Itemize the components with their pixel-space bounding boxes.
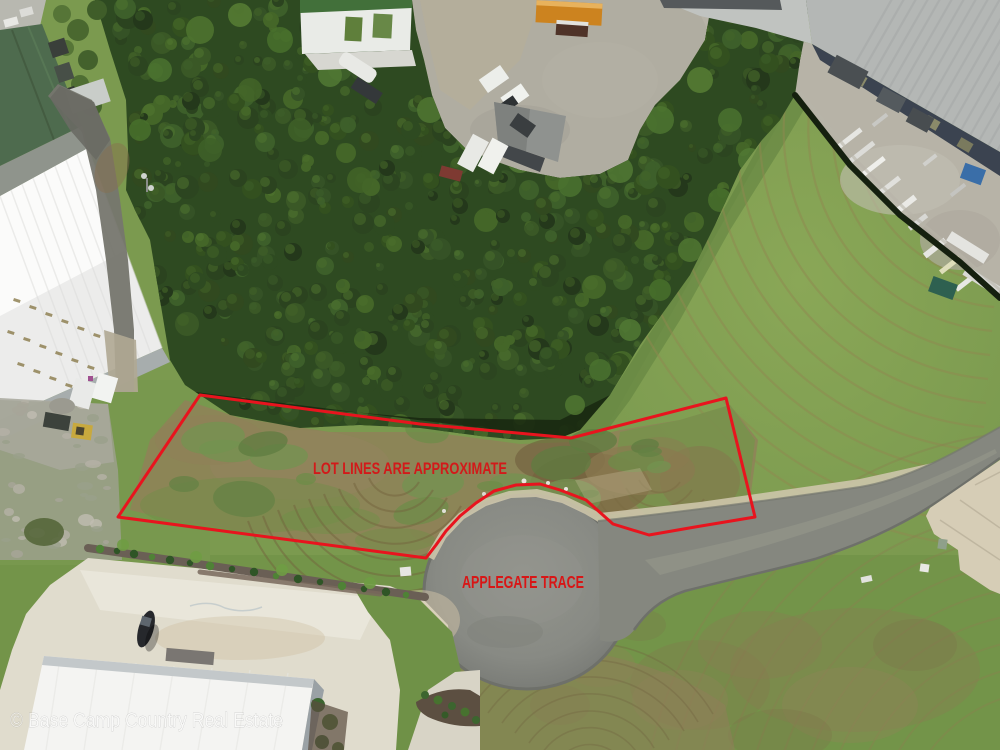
svg-text:LOT LINES ARE APPROXIMATE: LOT LINES ARE APPROXIMATE	[313, 460, 507, 478]
svg-text:APPLEGATE TRACE: APPLEGATE TRACE	[462, 572, 584, 592]
svg-text:© Base Camp Country Real Estat: © Base Camp Country Real Estate	[10, 710, 283, 732]
